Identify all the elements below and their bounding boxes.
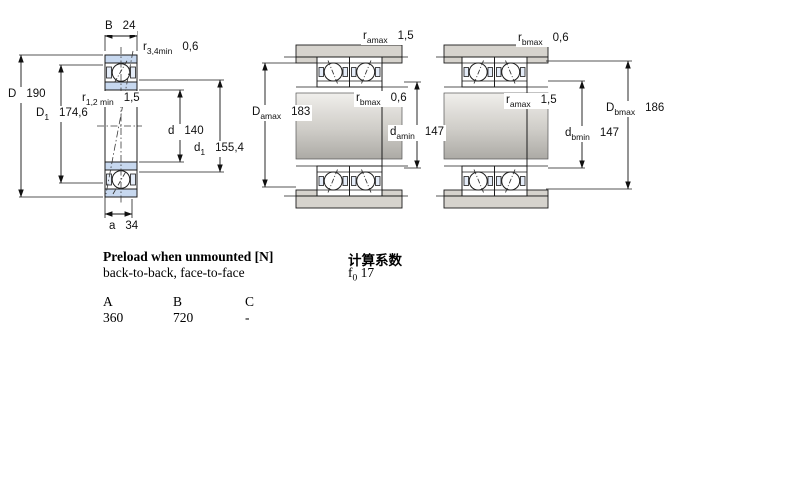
bearing-pair-top (317, 57, 382, 87)
preload-subtitle: back-to-back, face-to-face (103, 265, 245, 281)
dim-label-Dbmax: Dbmax186 (604, 101, 666, 117)
dim-label-D1: D1174,6 (34, 106, 90, 122)
dim-label-rbmax-right: rbmax0,6 (516, 31, 571, 47)
dim-label-damin: damin147 (388, 125, 446, 141)
preload-col-header-A: A (103, 294, 113, 310)
dim-label-Damax: Damax183 (250, 105, 312, 121)
preload-value-B: 720 (173, 310, 193, 326)
bearing-pair-top (462, 57, 527, 87)
dim-label-B: B24 (103, 19, 137, 35)
bearing-pair-bottom (462, 166, 527, 196)
dim-label-D: D190 (6, 87, 48, 103)
dim-label-dbmin: dbmin147 (563, 126, 621, 142)
bearing-pair-bottom (317, 166, 382, 196)
dim-label-a: a34 (107, 219, 140, 235)
preload-col-header-B: B (173, 294, 182, 310)
housing-bottom (444, 196, 548, 208)
dim-label-r12min: r1,2 min1,5 (80, 91, 142, 107)
f0-factor: f0 17 (348, 265, 374, 284)
dim-label-ramax-right: ramax1,5 (504, 93, 559, 109)
bearing-drawing-page: .ln{stroke:#1c1c1c;stroke-width:1;fill:n… (0, 0, 800, 500)
preload-col-header-C: C (245, 294, 254, 310)
dim-label-rbmax-middle: rbmax0,6 (354, 91, 409, 107)
dim-label-r34min: r3,4min0,6 (141, 40, 200, 56)
preload-value-C: - (245, 310, 250, 326)
preload-value-A: 360 (103, 310, 123, 326)
dim-label-d1: d1155,4 (192, 141, 246, 157)
housing-top (296, 45, 402, 57)
preload-title: Preload when unmounted [N] (103, 249, 273, 265)
housing-bottom (296, 196, 402, 208)
dim-label-d: d140 (166, 124, 206, 140)
dim-label-ramax-middle: ramax1,5 (361, 29, 416, 45)
